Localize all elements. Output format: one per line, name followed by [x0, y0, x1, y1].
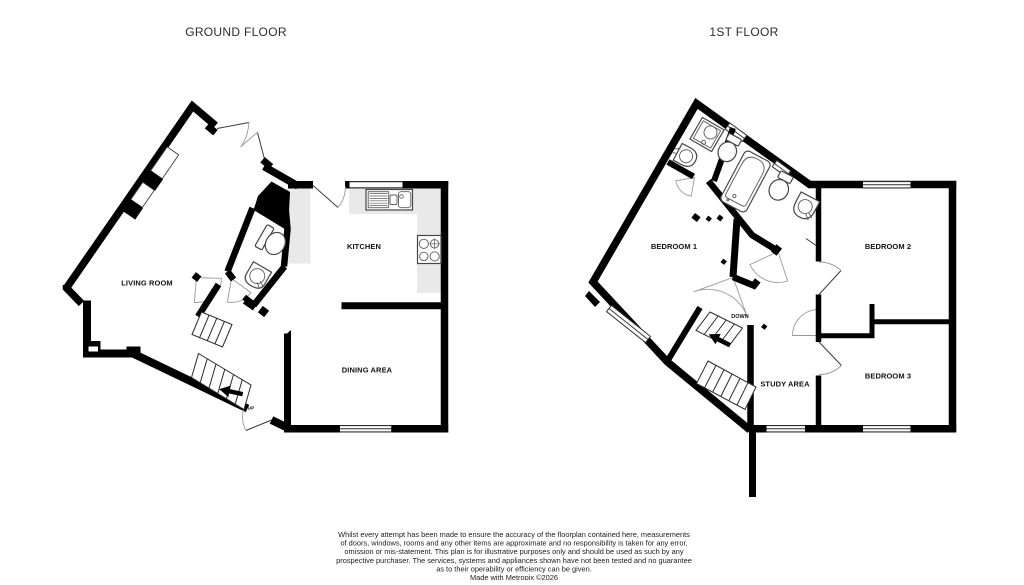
svg-text:BEDROOM 1: BEDROOM 1 [651, 242, 697, 251]
svg-text:DOWN: DOWN [731, 314, 748, 320]
svg-text:1ST FLOOR: 1ST FLOOR [709, 25, 778, 39]
svg-text:GROUND FLOOR: GROUND FLOOR [185, 25, 287, 39]
svg-text:DINING AREA: DINING AREA [342, 366, 393, 375]
svg-text:Made with Metropix ©2026: Made with Metropix ©2026 [470, 573, 558, 580]
svg-text:STUDY AREA: STUDY AREA [760, 380, 810, 389]
svg-text:UP: UP [248, 405, 255, 411]
svg-text:KITCHEN: KITCHEN [347, 242, 381, 251]
svg-text:BEDROOM 3: BEDROOM 3 [865, 372, 911, 381]
svg-text:BEDROOM 2: BEDROOM 2 [865, 242, 911, 251]
svg-text:LIVING ROOM: LIVING ROOM [121, 279, 173, 288]
